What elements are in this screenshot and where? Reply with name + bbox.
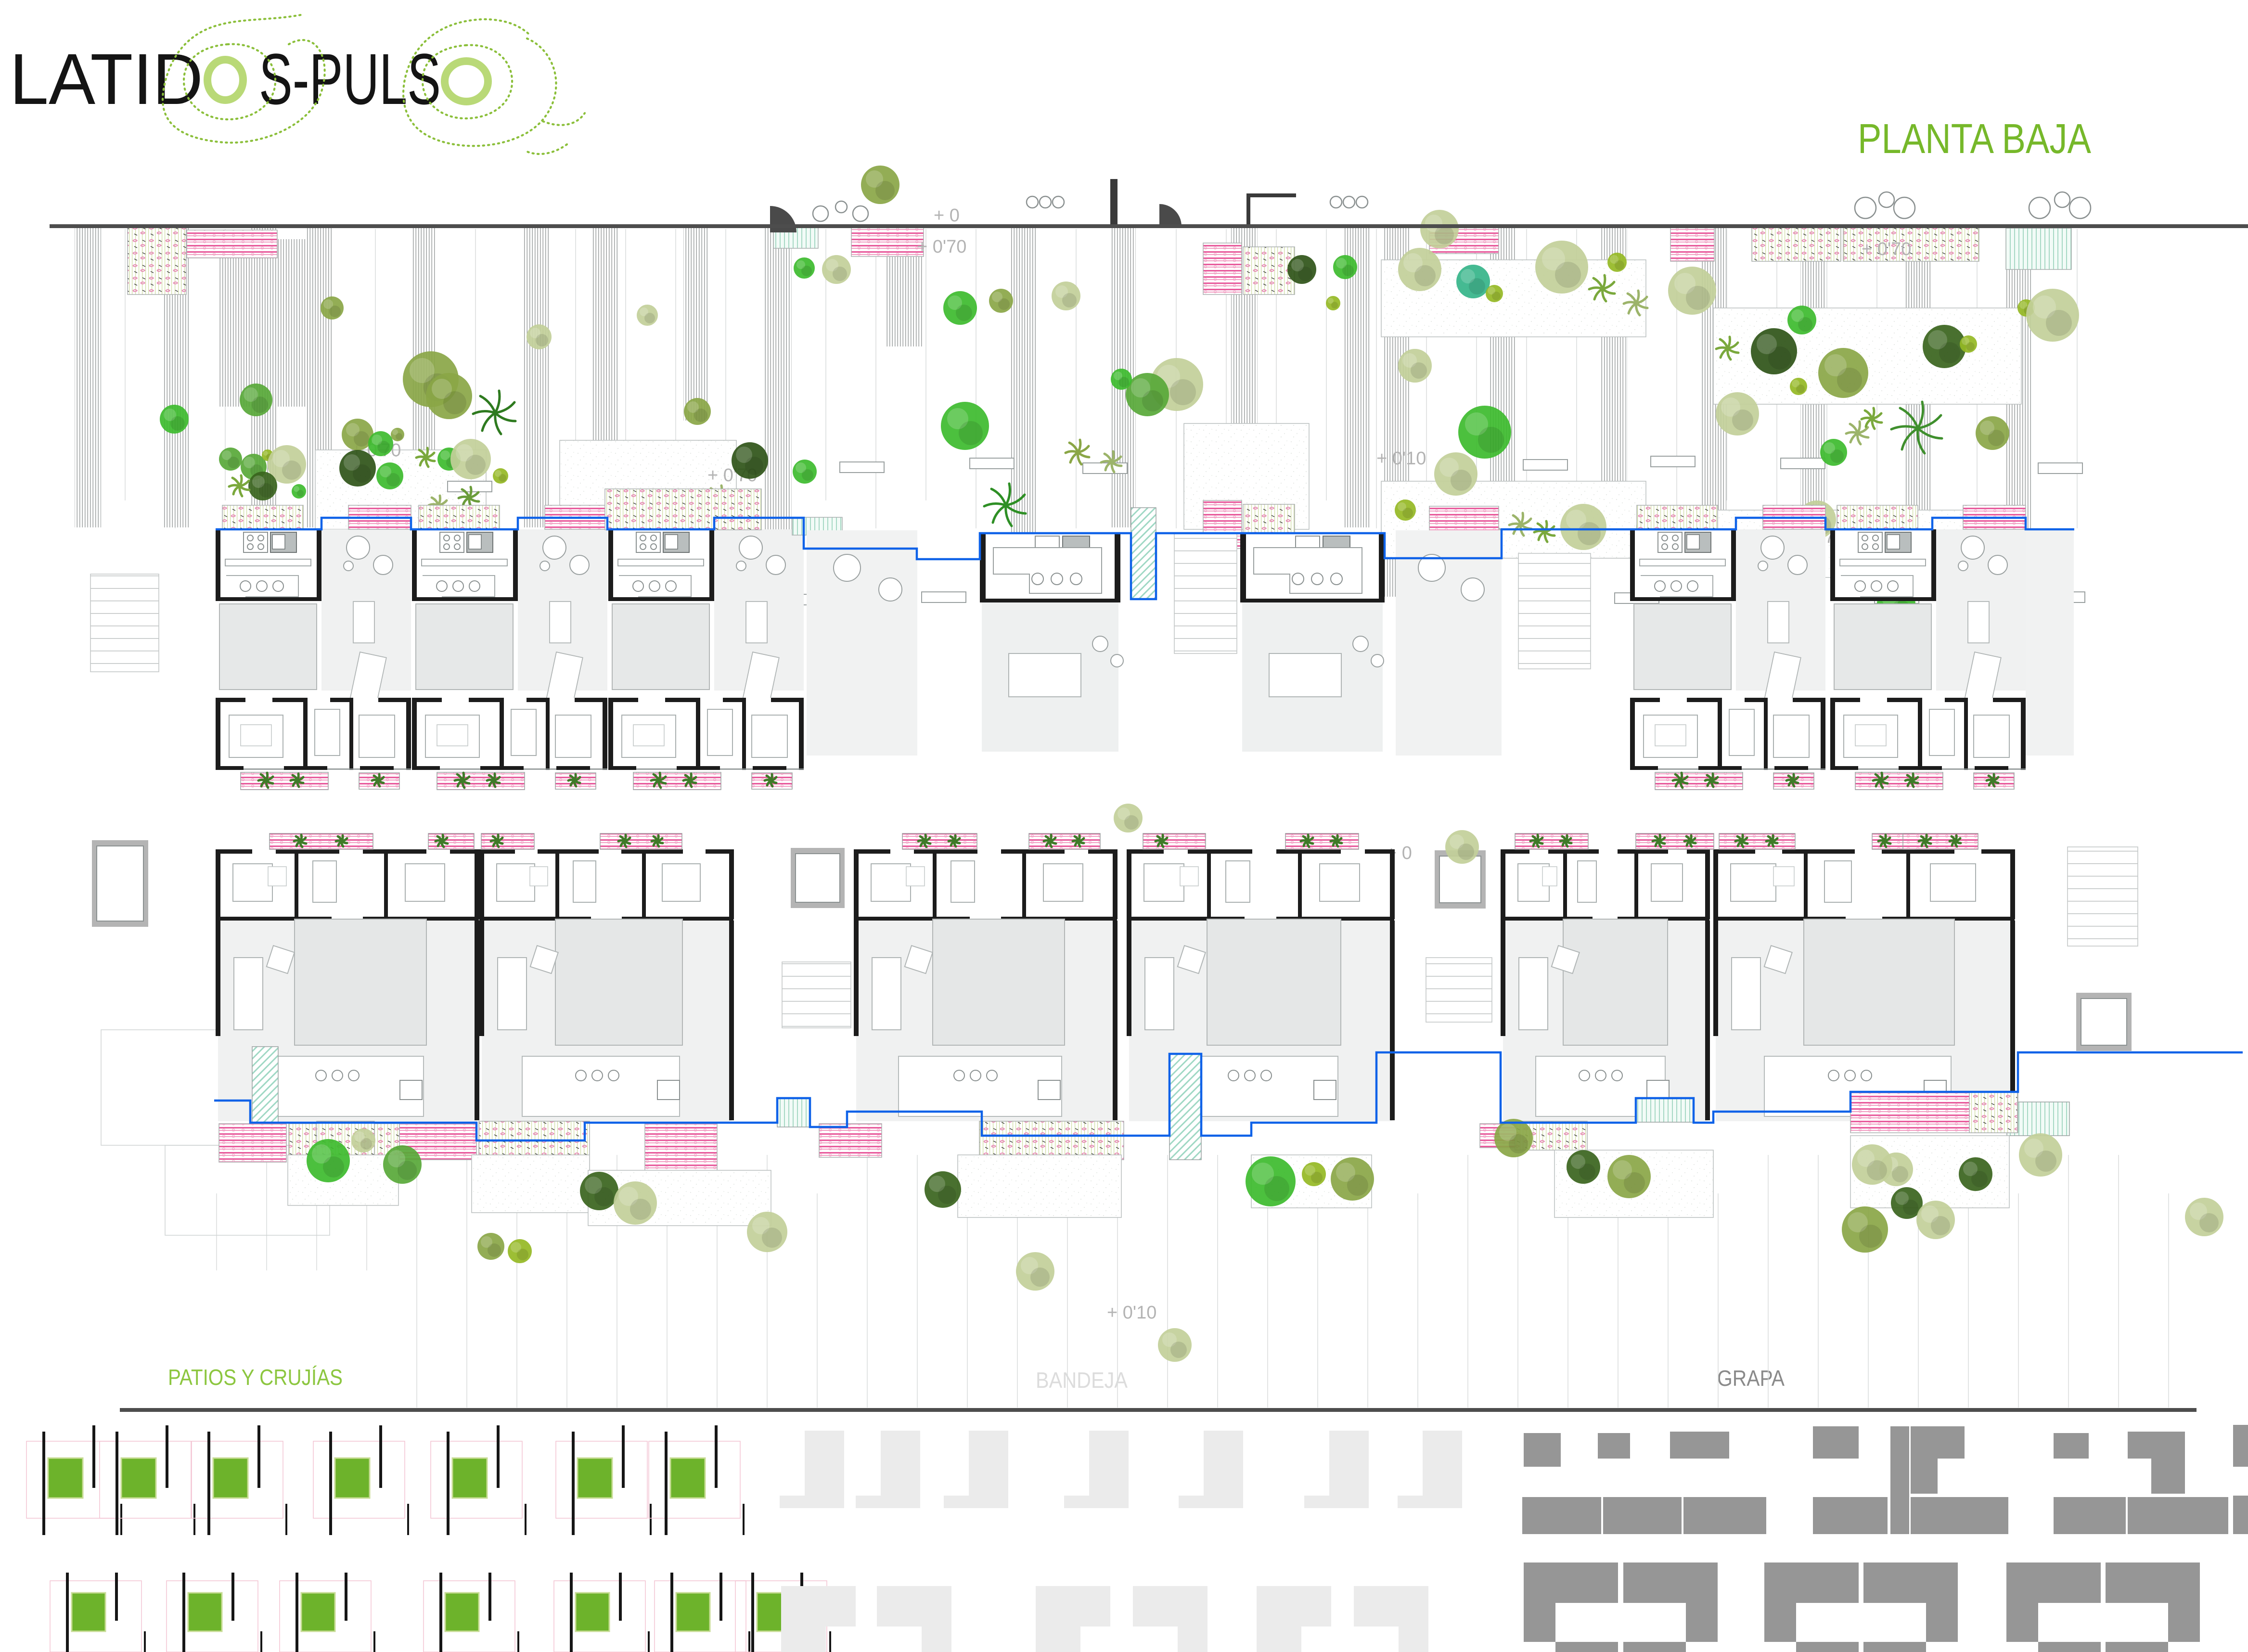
svg-text:BANDEJA: BANDEJA (1036, 1368, 1128, 1393)
svg-text:GRAPA: GRAPA (1717, 1366, 1785, 1391)
svg-text:S-PULS: S-PULS (259, 38, 441, 119)
svg-text:+ 0'70: + 0'70 (1862, 239, 1911, 259)
svg-text:+ 0'70: + 0'70 (917, 237, 966, 257)
svg-text:+ 0'10: + 0'10 (1376, 448, 1426, 469)
svg-text:LATID: LATID (10, 38, 203, 119)
svg-text:+ 0'10: + 0'10 (1107, 1303, 1156, 1323)
svg-text:+ 0: + 0 (934, 205, 960, 226)
svg-text:PATIOS Y CRUJÍAS: PATIOS Y CRUJÍAS (168, 1365, 343, 1390)
svg-text:PLANTA BAJA: PLANTA BAJA (1858, 115, 2091, 162)
